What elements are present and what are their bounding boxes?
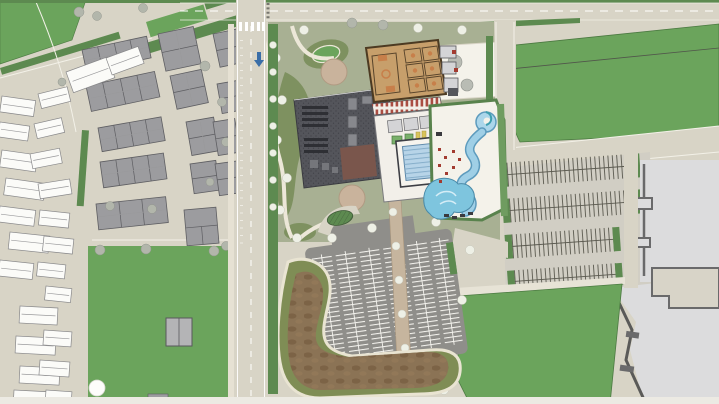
tree-icon (270, 204, 277, 211)
dark-unit (448, 88, 458, 96)
tree-icon (278, 96, 287, 105)
tree-icon (328, 234, 337, 243)
house (45, 286, 72, 303)
round-structure (89, 380, 105, 396)
sidewalk (228, 24, 234, 398)
tree-icon (347, 18, 357, 28)
house (19, 306, 58, 325)
tree-icon (458, 26, 467, 35)
small-outbuilding (166, 318, 192, 346)
townhouse-row (213, 119, 240, 156)
tree-icon (300, 26, 309, 35)
tree-icon (270, 177, 277, 184)
service-drive (624, 150, 638, 288)
tree-icon (218, 98, 227, 107)
townhouse-row (158, 27, 201, 72)
tree-icon (395, 276, 403, 284)
tree-icon (378, 20, 388, 30)
tree-icon (398, 310, 406, 318)
court-key (386, 85, 396, 92)
green-field (458, 284, 622, 404)
house (43, 330, 72, 347)
tree-icon (389, 208, 397, 216)
tree-icon (270, 42, 277, 49)
plaza-circle (321, 59, 347, 85)
court-key (378, 54, 388, 61)
tree-icon (139, 4, 148, 13)
tree-icon (95, 245, 105, 255)
outdoor-aquatics (424, 100, 508, 220)
tree-icon (270, 96, 277, 103)
site-plan-canvas (0, 0, 719, 404)
tree-icon (283, 174, 292, 183)
gymnasium (366, 40, 446, 102)
tree-icon (270, 150, 277, 157)
image-edge-strip (0, 397, 719, 404)
house (0, 260, 34, 279)
big-box-site (612, 150, 719, 404)
tree-icon (392, 242, 400, 250)
site-plan-drawing (0, 0, 719, 404)
tree-icon (200, 61, 210, 71)
tree-icon (58, 78, 66, 86)
tree-icon (106, 202, 115, 211)
tree-icon (293, 234, 302, 243)
green-field (88, 246, 234, 398)
tree-icon (414, 24, 423, 33)
road-verge (0, 0, 719, 3)
tree-icon (93, 12, 102, 21)
tree-icon (270, 123, 277, 130)
south-east-field (455, 277, 625, 404)
tree-icon (141, 244, 151, 254)
tree-icon (74, 7, 84, 17)
townhouse-row (170, 69, 208, 109)
tree-icon (206, 178, 214, 186)
house (39, 360, 70, 377)
maroon-roof-section (340, 144, 377, 180)
red-unit (454, 68, 458, 72)
big-box-apron (640, 160, 719, 282)
tree-icon (458, 296, 467, 305)
tree-icon (209, 246, 219, 256)
house (37, 262, 66, 279)
house (38, 210, 69, 228)
house (42, 236, 73, 254)
tree-icon (148, 205, 157, 214)
tree-icon (368, 224, 377, 233)
rock-feature (461, 79, 473, 91)
tree-icon (466, 246, 475, 255)
red-unit (452, 50, 456, 54)
garage-row (184, 207, 219, 246)
tree-icon (270, 69, 277, 76)
